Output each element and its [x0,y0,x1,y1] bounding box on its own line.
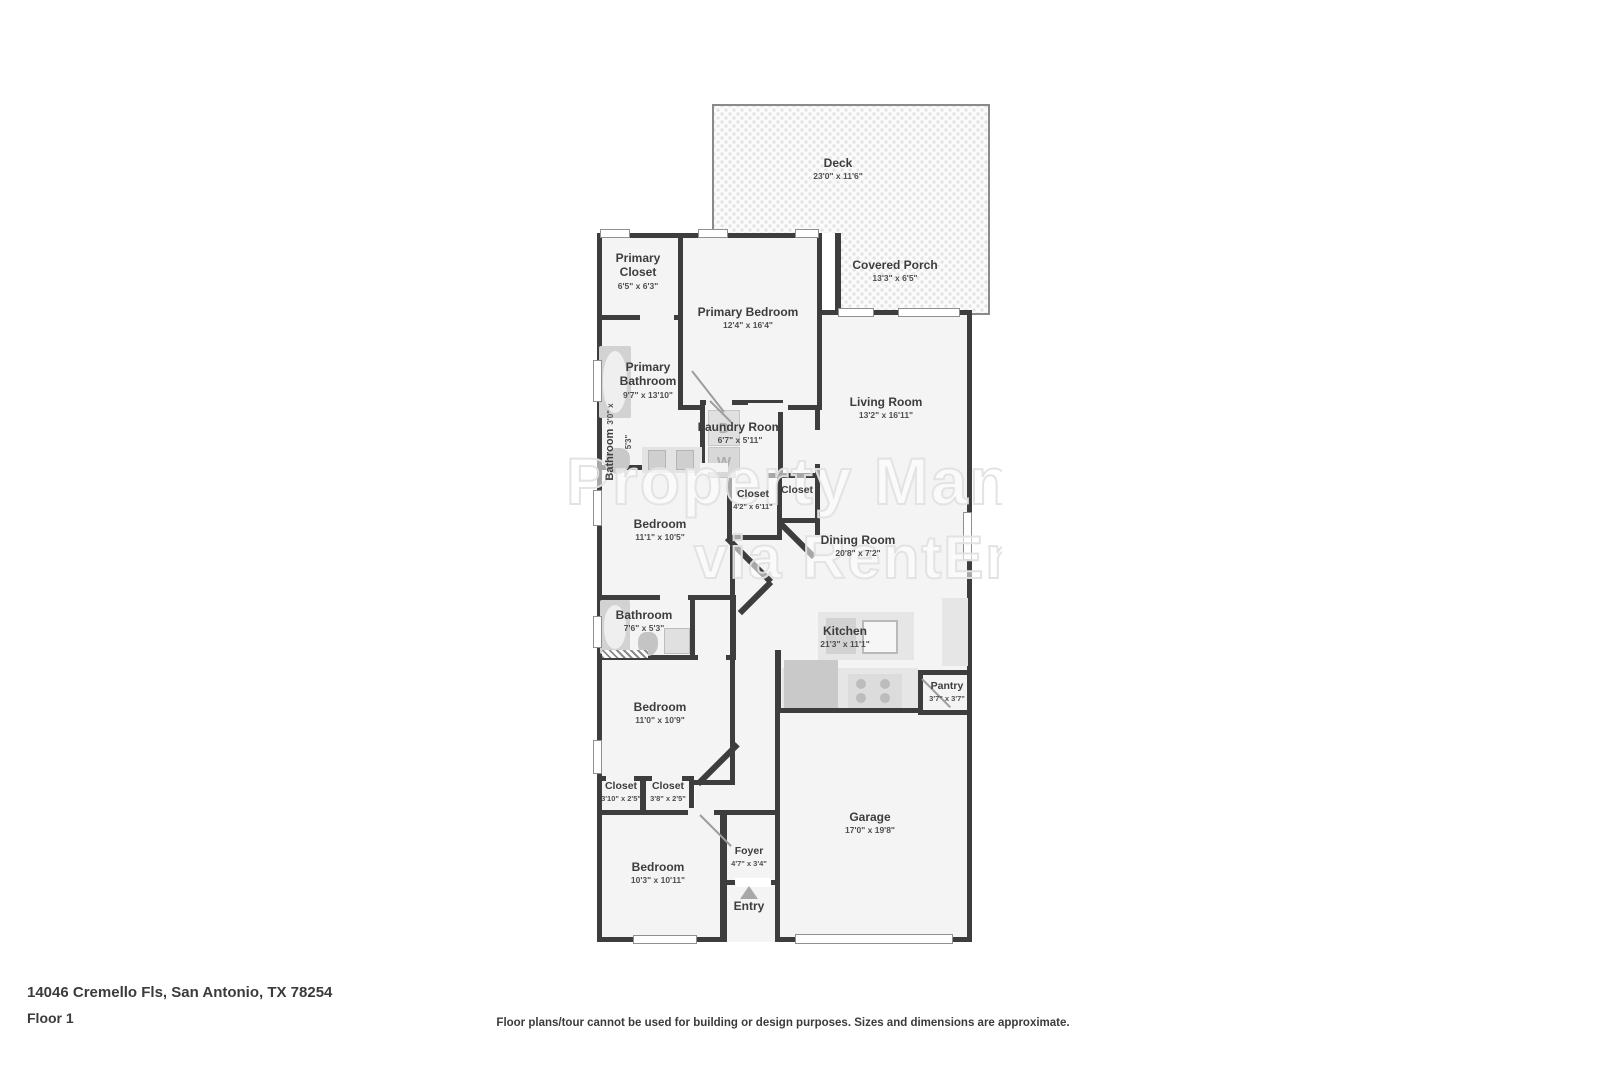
sink [676,450,694,470]
garage-door [795,934,953,944]
door-opening [698,653,726,662]
kitchen-counter [942,598,968,666]
label-hall-closet-2: Closet [781,484,813,498]
label-hall-closet-1: Closet4'2" x 6'11" [733,488,772,511]
label-primary-closet: Primary Closet6'5" x 6'3" [602,251,674,291]
window [633,935,697,944]
window [593,740,602,774]
door-opening [812,430,821,464]
porch-left-wall [835,233,841,315]
label-entry: Entry [734,899,765,913]
stove [848,674,902,708]
corridor-left-wall [730,595,736,660]
window [593,360,602,402]
label-bedroom-3: Bedroom10'3" x 10'11" [631,860,685,885]
floor-plan-page: D W Property Man via RentEngi Deck23'0" … [0,0,1600,1067]
disclaimer-text: Floor plans/tour cannot be used for buil… [496,1017,1069,1029]
label-garage: Garage17'0" x 19'8" [845,810,895,835]
window [698,229,728,238]
room-living [815,310,972,540]
window [838,308,874,317]
label-closet-b: Closet3'8" x 2'5" [650,780,686,803]
window [593,616,602,648]
label-primary-bathroom: Primary Bathroom9'7" x 13'10" [608,360,688,400]
label-bedroom-2: Bedroom11'0" x 10'9" [634,700,687,725]
corridor-right-wall [775,650,781,712]
window [600,229,630,238]
label-foyer: Foyer4'7" x 3'4" [731,845,767,868]
refrigerator [784,660,838,708]
door-opening [640,313,674,322]
door-opening [700,463,728,472]
window [593,490,602,526]
label-covered-porch: Covered Porch13'3" x 6'5" [852,258,937,283]
door-opening [660,593,688,602]
label-bedroom-1: Bedroom11'1" x 10'5" [634,517,687,542]
label-primary-bedroom: Primary Bedroom12'4" x 16'4" [698,305,799,330]
label-kitchen: Kitchen21'3" x 11'1" [820,624,869,649]
label-closet-a: Closet3'10" x 2'5" [601,780,641,803]
window [795,229,819,238]
label-dining-room: Dining Room20'8" x 7'2" [821,533,896,558]
door-opening [736,471,768,480]
door-opening [748,403,788,412]
sink [648,450,666,470]
window [898,308,960,317]
label-bathroom-2: Bathroom7'6" x 5'3" [616,608,673,633]
label-living-room: Living Room13'2" x 16'11" [850,395,923,420]
room-hall-closet-2 [777,473,820,523]
label-deck: Deck23'0" x 11'6" [813,156,862,181]
address-text: 14046 Cremello Fls, San Antonio, TX 7825… [27,984,332,1001]
label-pantry: Pantry3'7" x 3'7" [929,680,965,703]
window [963,512,972,560]
label-laundry: Laundry Room6'7" x 5'11" [698,420,783,445]
label-bathroom-small: Bathroom3'0" x 5'3" [600,397,636,487]
entry-arrow-icon [740,886,758,899]
floor-label: Floor 1 [27,1010,74,1026]
threshold [602,650,648,658]
